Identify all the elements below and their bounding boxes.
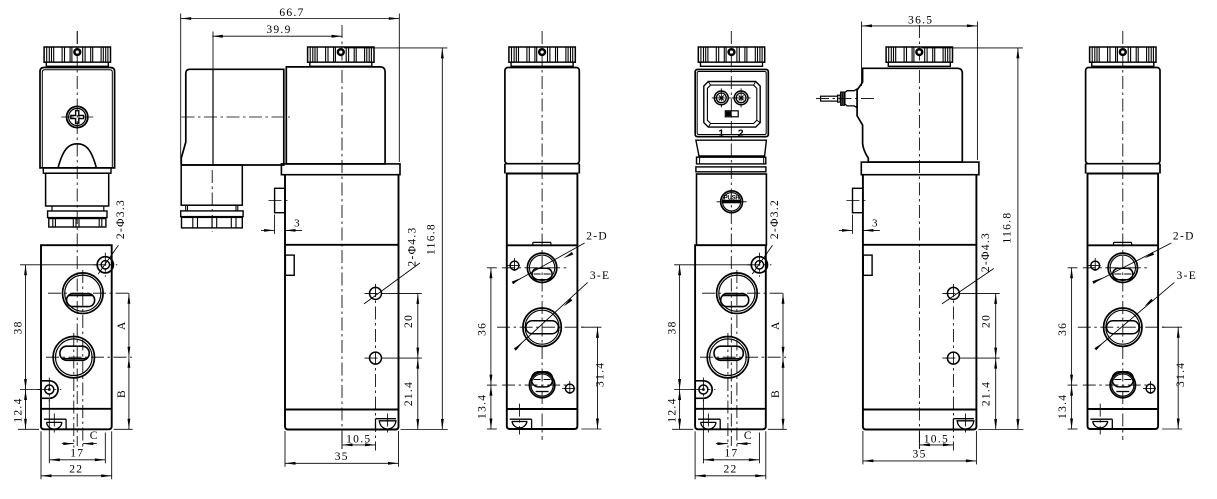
svg-text:2-D: 2-D bbox=[1173, 231, 1195, 243]
svg-text:3: 3 bbox=[872, 217, 879, 229]
svg-text:1: 1 bbox=[718, 127, 725, 139]
svg-text:A: A bbox=[770, 320, 782, 330]
svg-text:20: 20 bbox=[981, 314, 993, 328]
svg-text:38: 38 bbox=[13, 320, 25, 334]
svg-text:2-D: 2-D bbox=[586, 231, 608, 243]
svg-text:13.4: 13.4 bbox=[476, 394, 488, 419]
svg-text:12.4: 12.4 bbox=[13, 397, 25, 422]
svg-text:36.5: 36.5 bbox=[908, 14, 933, 26]
svg-text:35: 35 bbox=[913, 449, 927, 461]
svg-text:38: 38 bbox=[667, 320, 679, 334]
svg-text:2-Φ4.3: 2-Φ4.3 bbox=[406, 226, 418, 266]
svg-text:2: 2 bbox=[738, 127, 745, 139]
svg-text:22: 22 bbox=[69, 463, 83, 475]
svg-text:20: 20 bbox=[403, 314, 415, 328]
svg-text:3-E: 3-E bbox=[1177, 270, 1198, 282]
svg-text:35: 35 bbox=[335, 451, 349, 463]
svg-text:36: 36 bbox=[1057, 322, 1069, 336]
svg-text:2-Φ4.3: 2-Φ4.3 bbox=[980, 232, 992, 272]
svg-text:B: B bbox=[116, 389, 128, 398]
svg-text:31.4: 31.4 bbox=[594, 362, 606, 387]
svg-text:36: 36 bbox=[476, 322, 488, 336]
svg-text:2-Φ3.2: 2-Φ3.2 bbox=[769, 199, 781, 239]
svg-text:39.9: 39.9 bbox=[266, 24, 291, 36]
svg-text:21.4: 21.4 bbox=[981, 381, 993, 406]
svg-text:A: A bbox=[116, 320, 128, 330]
svg-text:C: C bbox=[90, 430, 99, 442]
svg-text:B: B bbox=[770, 389, 782, 398]
svg-text:12.4: 12.4 bbox=[667, 397, 679, 422]
svg-text:3-E: 3-E bbox=[590, 270, 611, 282]
svg-text:17: 17 bbox=[70, 447, 84, 459]
svg-text:10.5: 10.5 bbox=[346, 434, 371, 446]
svg-text:3: 3 bbox=[294, 217, 301, 229]
svg-text:22: 22 bbox=[723, 463, 737, 475]
svg-text:C: C bbox=[744, 430, 753, 442]
svg-text:116.8: 116.8 bbox=[426, 223, 438, 255]
svg-text:66.7: 66.7 bbox=[279, 7, 304, 19]
svg-text:116.8: 116.8 bbox=[1001, 212, 1013, 244]
svg-text:31.4: 31.4 bbox=[1175, 362, 1187, 387]
svg-text:10.5: 10.5 bbox=[924, 434, 949, 446]
svg-text:17: 17 bbox=[724, 447, 738, 459]
svg-text:13.4: 13.4 bbox=[1057, 394, 1069, 419]
svg-text:2-Φ3.3: 2-Φ3.3 bbox=[115, 199, 127, 239]
svg-text:21.4: 21.4 bbox=[403, 381, 415, 406]
